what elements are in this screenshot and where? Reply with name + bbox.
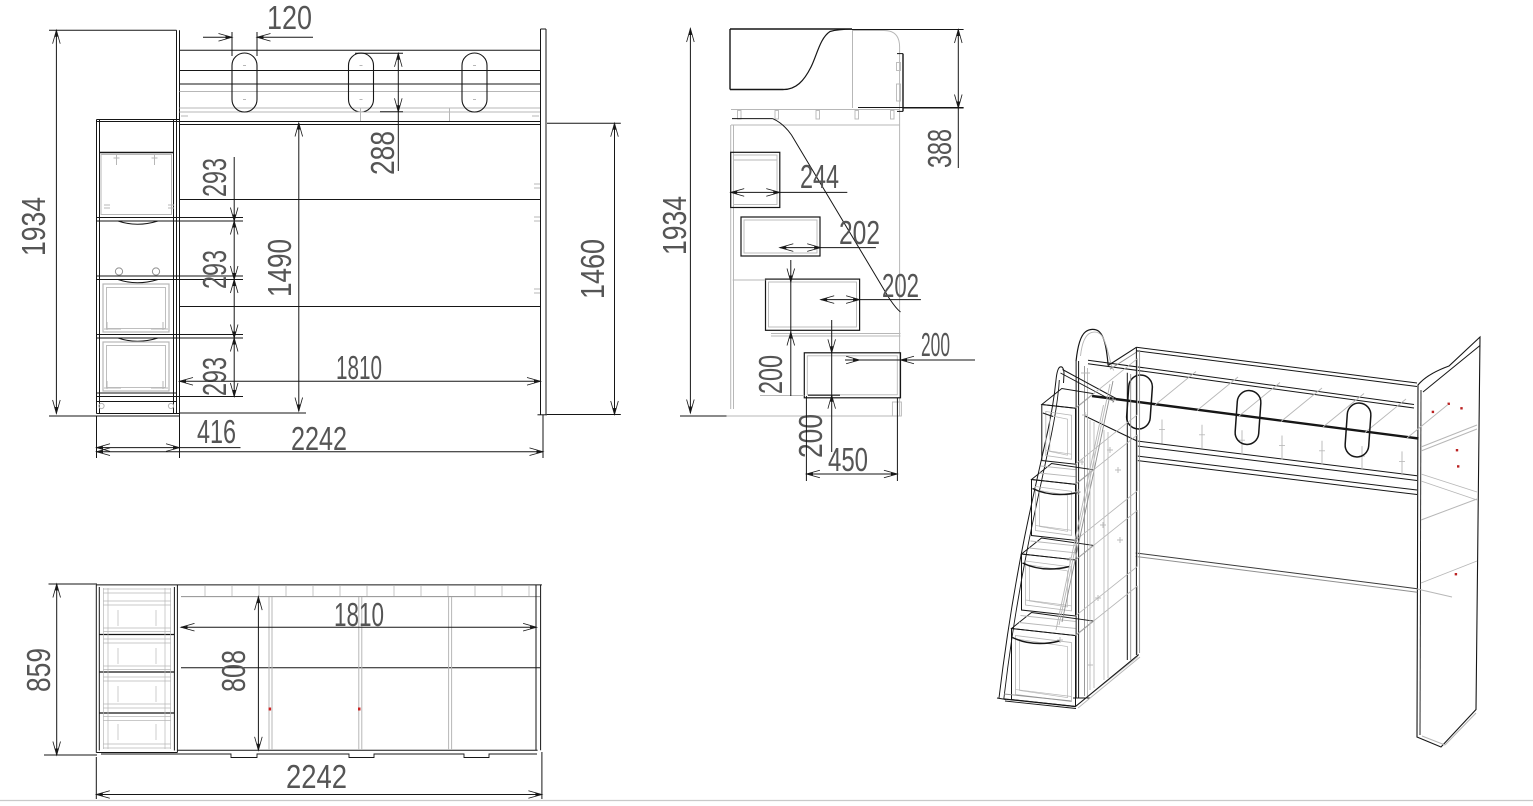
svg-text:808: 808 bbox=[215, 650, 252, 692]
svg-text:1810: 1810 bbox=[334, 596, 384, 633]
svg-text:200: 200 bbox=[752, 355, 789, 394]
svg-text:1934: 1934 bbox=[656, 196, 693, 255]
svg-text:200: 200 bbox=[792, 414, 829, 458]
svg-text:388: 388 bbox=[921, 129, 958, 168]
svg-text:1490: 1490 bbox=[261, 239, 298, 297]
svg-text:2242: 2242 bbox=[291, 420, 347, 457]
svg-text:416: 416 bbox=[197, 413, 236, 450]
svg-text:202: 202 bbox=[882, 267, 919, 304]
svg-text:288: 288 bbox=[364, 131, 401, 175]
svg-text:200: 200 bbox=[921, 326, 950, 363]
svg-text:293: 293 bbox=[196, 250, 233, 289]
svg-text:1934: 1934 bbox=[15, 197, 52, 256]
svg-text:859: 859 bbox=[20, 648, 57, 692]
svg-text:202: 202 bbox=[839, 214, 880, 251]
svg-text:1460: 1460 bbox=[574, 239, 611, 299]
svg-text:1810: 1810 bbox=[336, 349, 382, 386]
svg-text:293: 293 bbox=[196, 357, 233, 396]
svg-text:244: 244 bbox=[800, 158, 839, 195]
svg-text:293: 293 bbox=[196, 158, 233, 197]
svg-text:2242: 2242 bbox=[286, 758, 347, 795]
svg-text:450: 450 bbox=[828, 441, 868, 478]
svg-text:120: 120 bbox=[267, 0, 312, 36]
